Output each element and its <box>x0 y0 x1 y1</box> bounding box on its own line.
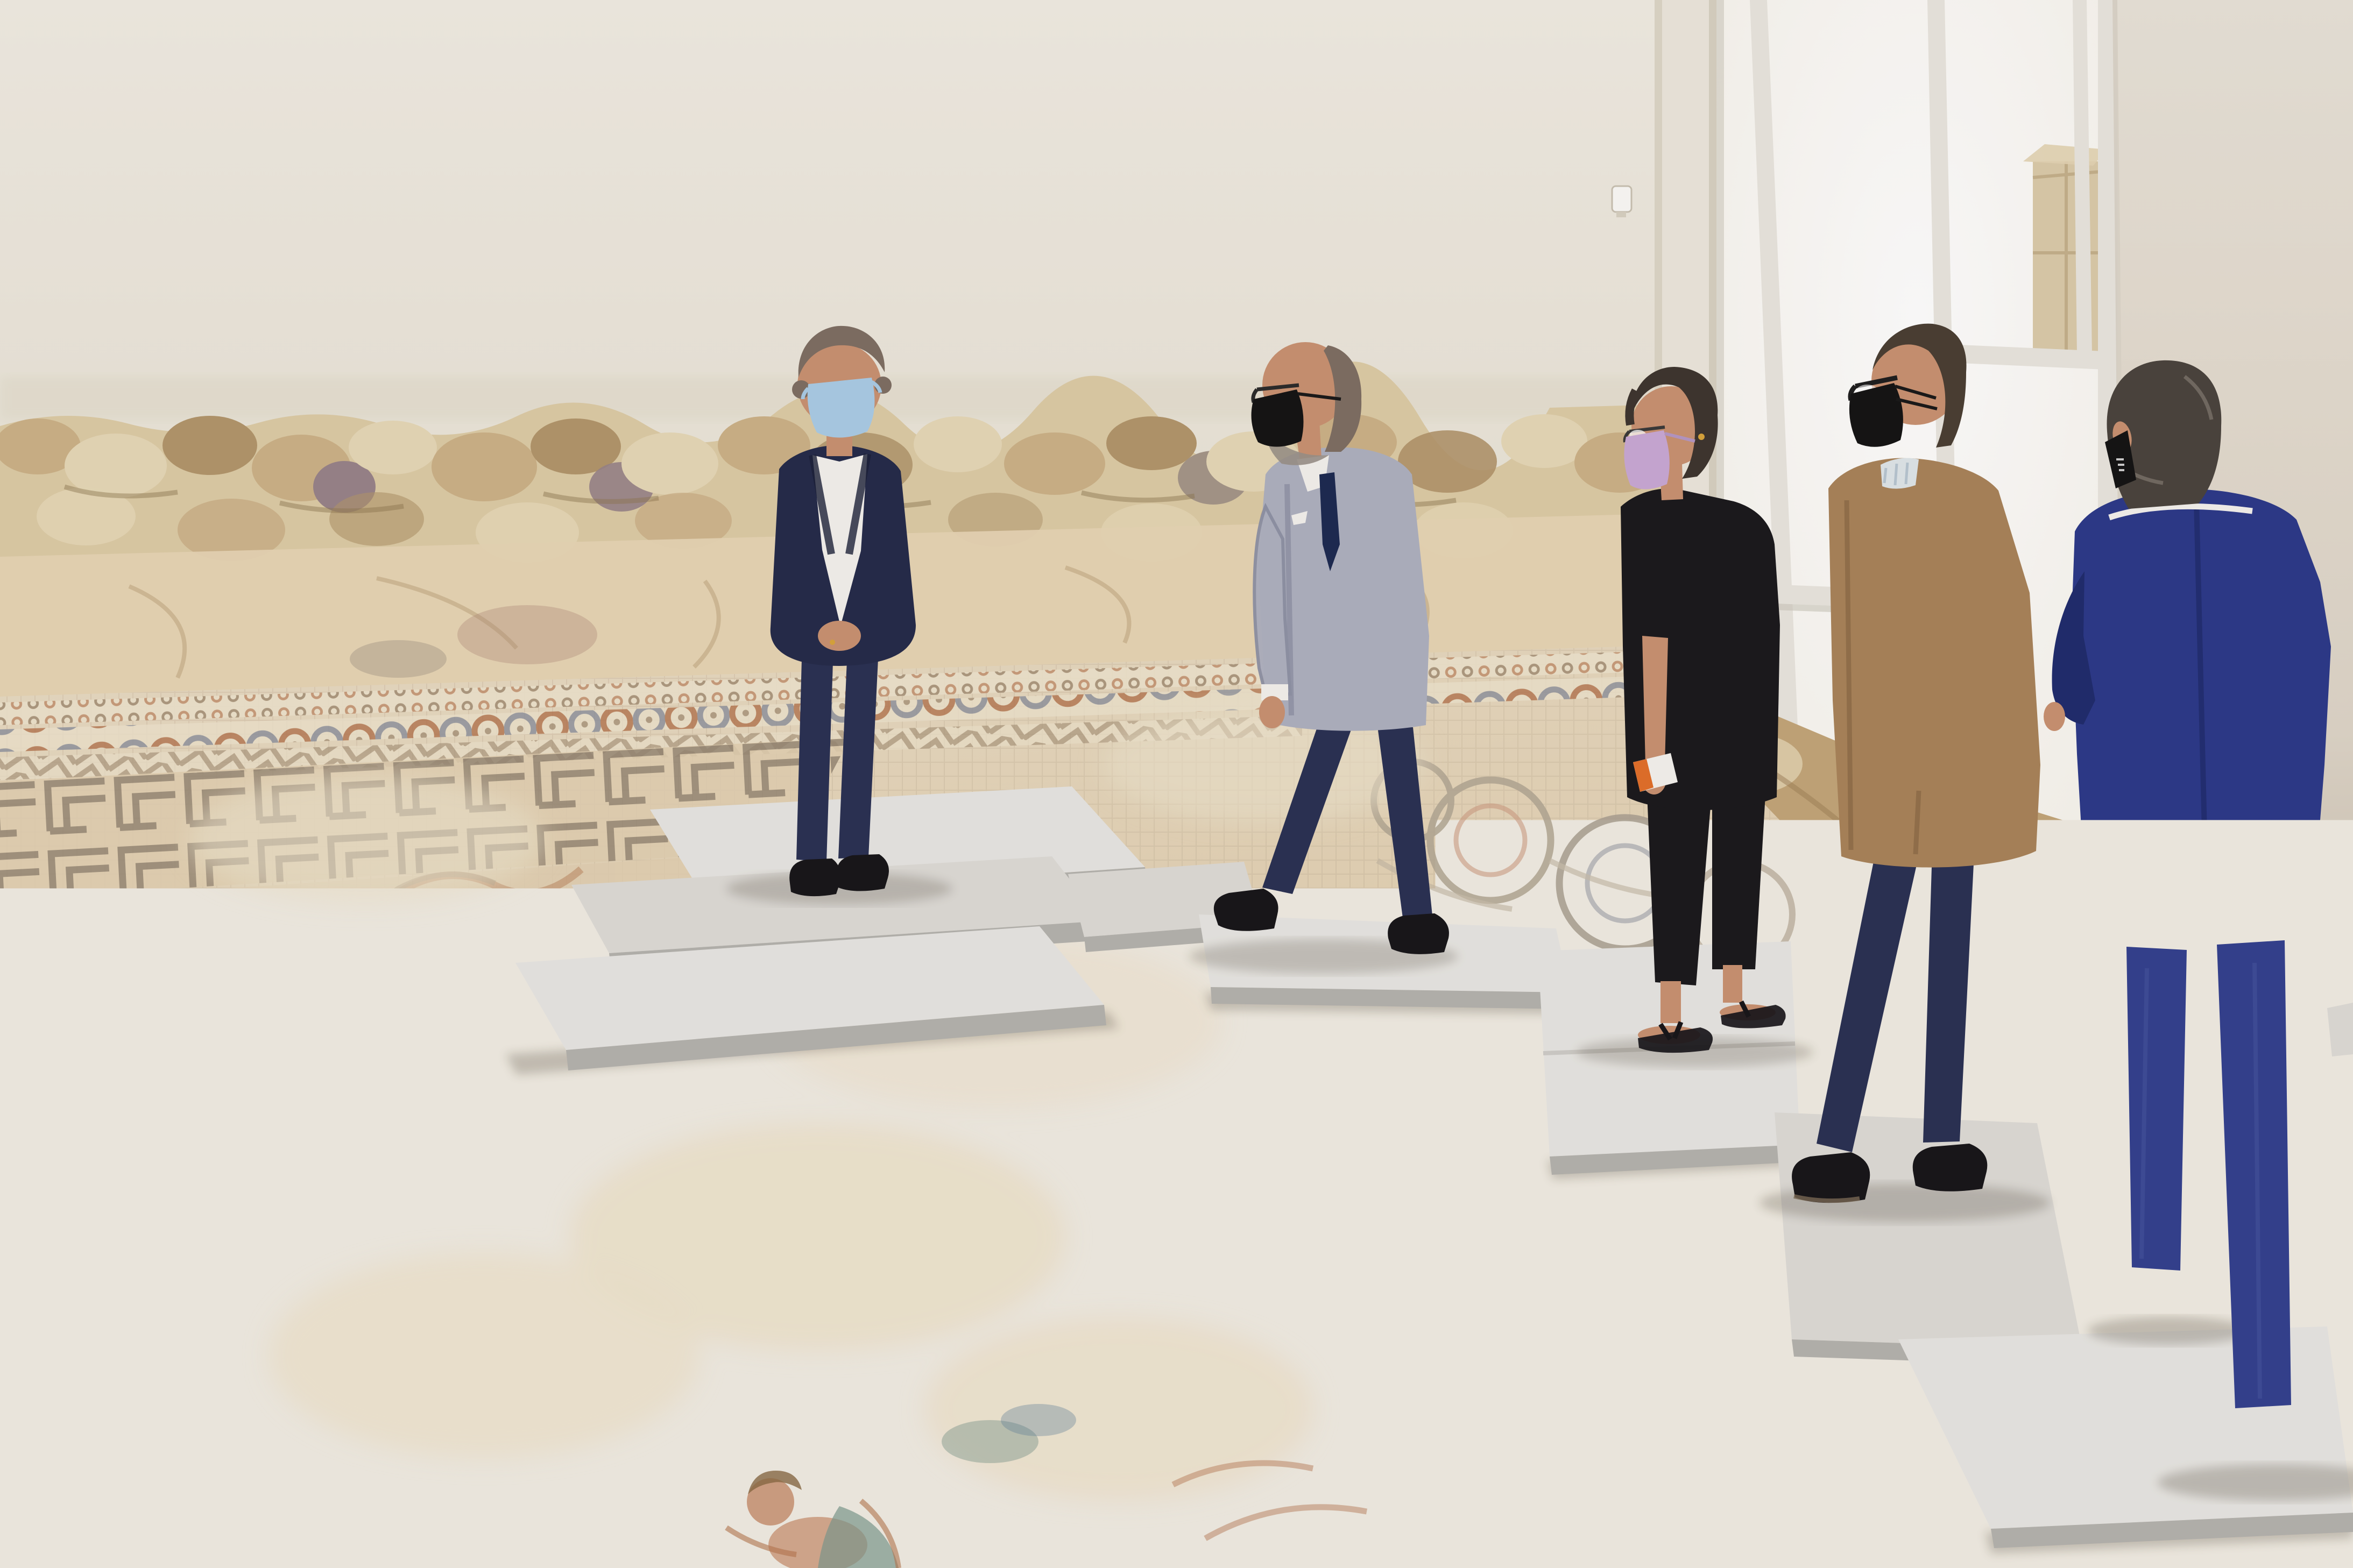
vignette <box>0 0 2353 1568</box>
photo-canvas <box>0 0 2353 1568</box>
museum-mosaic-hall-photo <box>0 0 2353 1568</box>
